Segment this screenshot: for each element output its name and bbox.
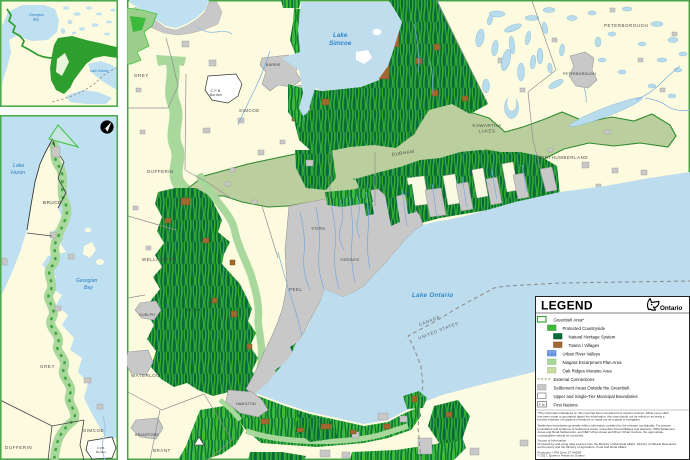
svg-text:F N: F N (539, 403, 545, 407)
svg-text:LAKES: LAKES (478, 129, 495, 134)
svg-text:BRANTFORD: BRANTFORD (135, 433, 159, 437)
svg-text:Lake Ontario: Lake Ontario (412, 292, 453, 299)
svg-text:PEEL: PEEL (289, 287, 303, 292)
svg-text:Huron: Huron (11, 170, 25, 176)
svg-text:WATERLOO: WATERLOO (131, 373, 160, 378)
svg-text:and Forestry and the Ministry: and Forestry and the Ministry of Agricul… (538, 445, 628, 449)
svg-text:HAMILTON: HAMILTON (236, 402, 256, 406)
svg-text:Bay: Bay (84, 285, 93, 291)
svg-text:municipalities should be consu: municipalities should be consulted. (538, 433, 585, 437)
svg-text:External Connections: External Connections (554, 377, 595, 382)
svg-text:GUELPH: GUELPH (139, 313, 155, 317)
svg-text:Oak Ridges Moraine Area: Oak Ridges Moraine Area (563, 369, 613, 374)
svg-text:GREY: GREY (40, 364, 55, 369)
svg-text:YORK: YORK (311, 226, 326, 231)
svg-text:TORONTO: TORONTO (340, 258, 359, 262)
svg-text:Borden: Borden (210, 93, 223, 97)
svg-text:Georgian: Georgian (29, 13, 44, 17)
svg-text:LEGEND: LEGEND (541, 299, 593, 313)
svg-text:WELLINGTON: WELLINGTON (142, 257, 177, 262)
svg-text:DUFFERIN: DUFFERIN (5, 445, 32, 450)
svg-text:SIMCOE: SIMCOE (83, 428, 104, 433)
svg-text:PETERBOROUGH: PETERBOROUGH (563, 72, 596, 76)
svg-text:First Nations: First Nations (554, 403, 578, 408)
svg-text:KAWARTHA: KAWARTHA (472, 123, 501, 128)
svg-text:HALTON: HALTON (185, 308, 201, 312)
svg-text:Bay: Bay (33, 18, 39, 22)
svg-text:Georgian: Georgian (76, 278, 97, 284)
svg-text:Settlement Areas Outside the G: Settlement Areas Outside the Greenbelt (554, 386, 631, 391)
svg-text:Greenbelt Area*: Greenbelt Area* (554, 318, 585, 323)
svg-text:GREY: GREY (134, 73, 149, 78)
svg-text:BRANT: BRANT (153, 448, 171, 453)
svg-text:Lake: Lake (333, 32, 348, 39)
svg-text:precise indicator of locations: precise indicator of locations of featur… (538, 418, 641, 422)
svg-text:Upper and Single-Tier Municipa: Upper and Single-Tier Municipal Boundari… (554, 394, 638, 399)
svg-text:Lake Ontario: Lake Ontario (90, 69, 108, 73)
svg-text:BRUCE: BRUCE (43, 200, 62, 205)
svg-text:Protected Countryside: Protected Countryside (563, 326, 606, 331)
svg-text:© 2017, Queen's Printer for On: © 2017, Queen's Printer for Ontario (538, 454, 585, 458)
svg-text:DUFFERIN: DUFFERIN (147, 169, 174, 174)
svg-text:BARRIE: BARRIE (266, 63, 281, 67)
svg-text:Niagara Escarpment Plan Area: Niagara Escarpment Plan Area (563, 360, 623, 365)
svg-text:Simcoe: Simcoe (329, 40, 352, 47)
svg-text:Urban River Valleys: Urban River Valleys (563, 352, 601, 357)
svg-text:Lake: Lake (13, 163, 24, 169)
svg-text:Towns / Villages: Towns / Villages (569, 343, 600, 348)
svg-text:PETERBOROUGH: PETERBOROUGH (604, 23, 648, 28)
svg-text:Natural Heritage System: Natural Heritage System (569, 335, 616, 340)
svg-text:Borden: Borden (96, 450, 106, 454)
svg-text:NORTHUMBERLAND: NORTHUMBERLAND (537, 155, 588, 160)
svg-text:Ontario: Ontario (660, 305, 683, 312)
svg-text:SIMCOE: SIMCOE (239, 108, 260, 113)
